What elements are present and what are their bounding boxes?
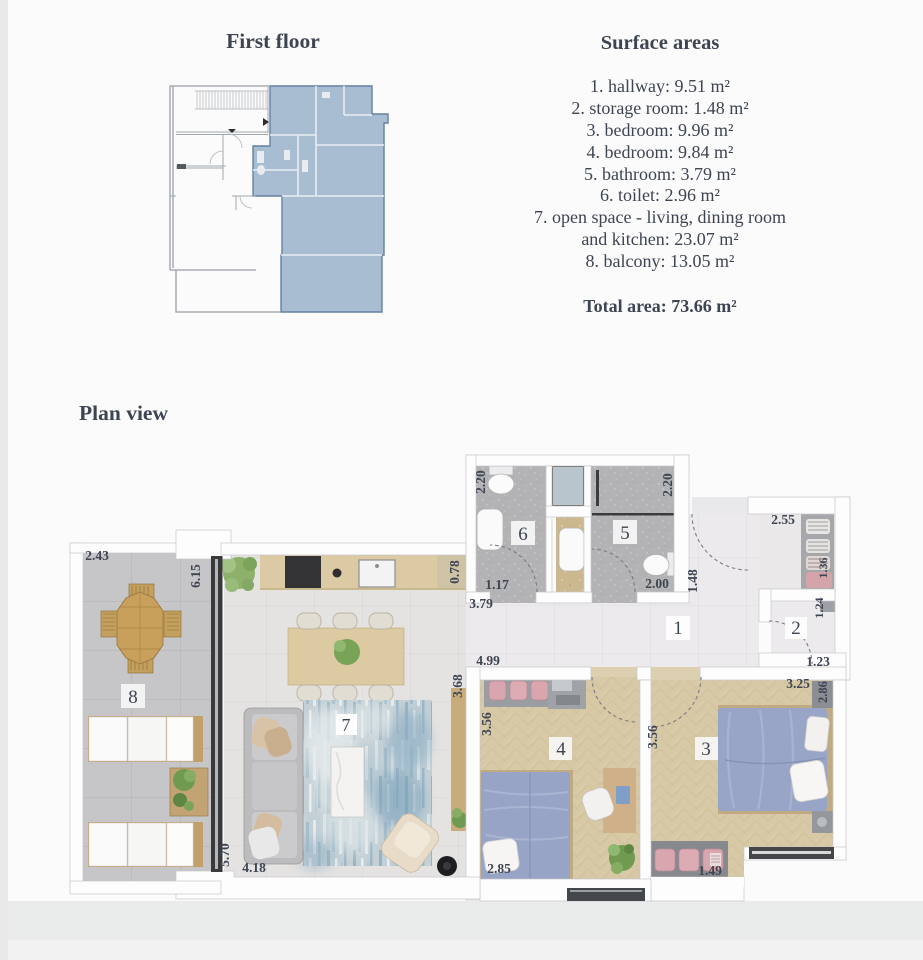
svg-text:5. bathroom: 3.79 m²: 5. bathroom: 3.79 m² [584, 164, 736, 184]
svg-text:1: 1 [673, 618, 683, 639]
svg-text:1.48: 1.48 [685, 569, 700, 593]
svg-text:4.99: 4.99 [476, 653, 500, 668]
svg-text:7: 7 [342, 715, 351, 735]
svg-text:2.20: 2.20 [660, 473, 675, 497]
svg-text:2. storage room: 1.48 m²: 2. storage room: 1.48 m² [571, 98, 748, 118]
svg-text:6.15: 6.15 [188, 564, 203, 588]
svg-text:2: 2 [791, 618, 801, 639]
svg-text:4.18: 4.18 [242, 860, 266, 875]
svg-text:6. toilet: 2.96 m²: 6. toilet: 2.96 m² [600, 185, 720, 205]
svg-text:Surface areas: Surface areas [601, 32, 720, 54]
svg-text:2.86: 2.86 [816, 681, 830, 703]
svg-text:8: 8 [128, 687, 138, 708]
svg-text:3.56: 3.56 [645, 725, 660, 749]
svg-text:1.17: 1.17 [485, 577, 509, 592]
svg-text:Plan view: Plan view [79, 401, 168, 425]
svg-text:8. balcony: 13.05 m²: 8. balcony: 13.05 m² [586, 251, 735, 271]
svg-text:3.56: 3.56 [479, 712, 494, 736]
svg-text:5.70: 5.70 [217, 843, 232, 867]
svg-text:1.49: 1.49 [698, 863, 722, 878]
svg-text:3.79: 3.79 [469, 596, 493, 611]
svg-text:1.23: 1.23 [806, 654, 830, 669]
svg-text:1.36: 1.36 [816, 558, 830, 579]
svg-text:and kitchen: 23.07 m²: and kitchen: 23.07 m² [581, 229, 738, 249]
svg-text:0.78: 0.78 [447, 560, 462, 584]
svg-text:1.24: 1.24 [812, 598, 826, 619]
svg-text:First floor: First floor [226, 29, 320, 53]
svg-text:3.25: 3.25 [786, 676, 810, 691]
svg-text:7. open space - living, dining: 7. open space - living, dining room [534, 207, 786, 227]
svg-text:3: 3 [701, 739, 711, 760]
svg-text:1. hallway: 9.51 m²: 1. hallway: 9.51 m² [590, 76, 730, 96]
svg-text:2.55: 2.55 [771, 512, 795, 527]
svg-text:Total area: 73.66 m²: Total area: 73.66 m² [583, 296, 736, 316]
svg-text:5: 5 [620, 523, 630, 544]
svg-text:2.85: 2.85 [487, 861, 511, 876]
svg-text:3. bedroom: 9.96 m²: 3. bedroom: 9.96 m² [587, 120, 734, 140]
svg-text:6: 6 [518, 524, 528, 545]
svg-text:2.20: 2.20 [473, 470, 488, 494]
svg-text:4. bedroom: 9.84 m²: 4. bedroom: 9.84 m² [587, 142, 734, 162]
svg-text:4: 4 [556, 739, 566, 760]
svg-text:3.68: 3.68 [450, 674, 465, 698]
svg-text:2.00: 2.00 [645, 576, 669, 591]
svg-text:2.43: 2.43 [85, 548, 109, 563]
